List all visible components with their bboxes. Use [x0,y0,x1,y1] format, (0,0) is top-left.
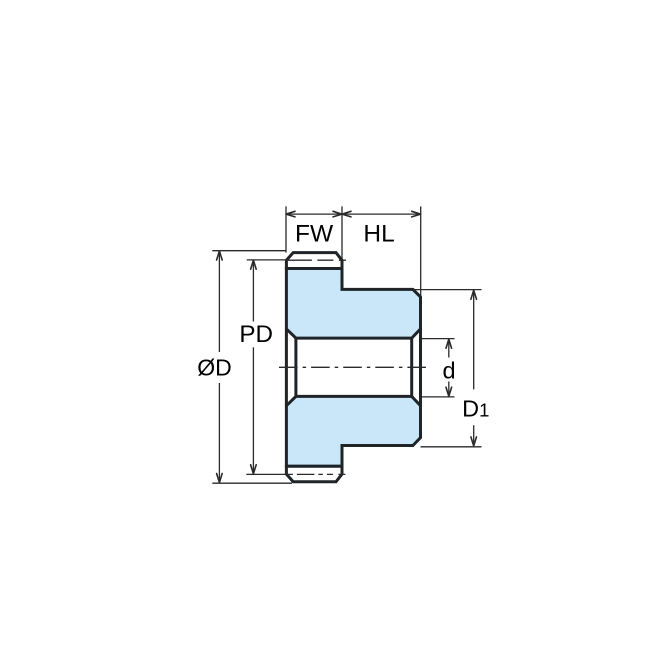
svg-text:ØD: ØD [197,354,232,380]
svg-text:HL: HL [363,221,394,248]
svg-text:PD: PD [239,321,273,348]
svg-text:FW: FW [295,221,334,248]
svg-text:d: d [443,357,456,383]
svg-text:D1: D1 [462,395,489,421]
